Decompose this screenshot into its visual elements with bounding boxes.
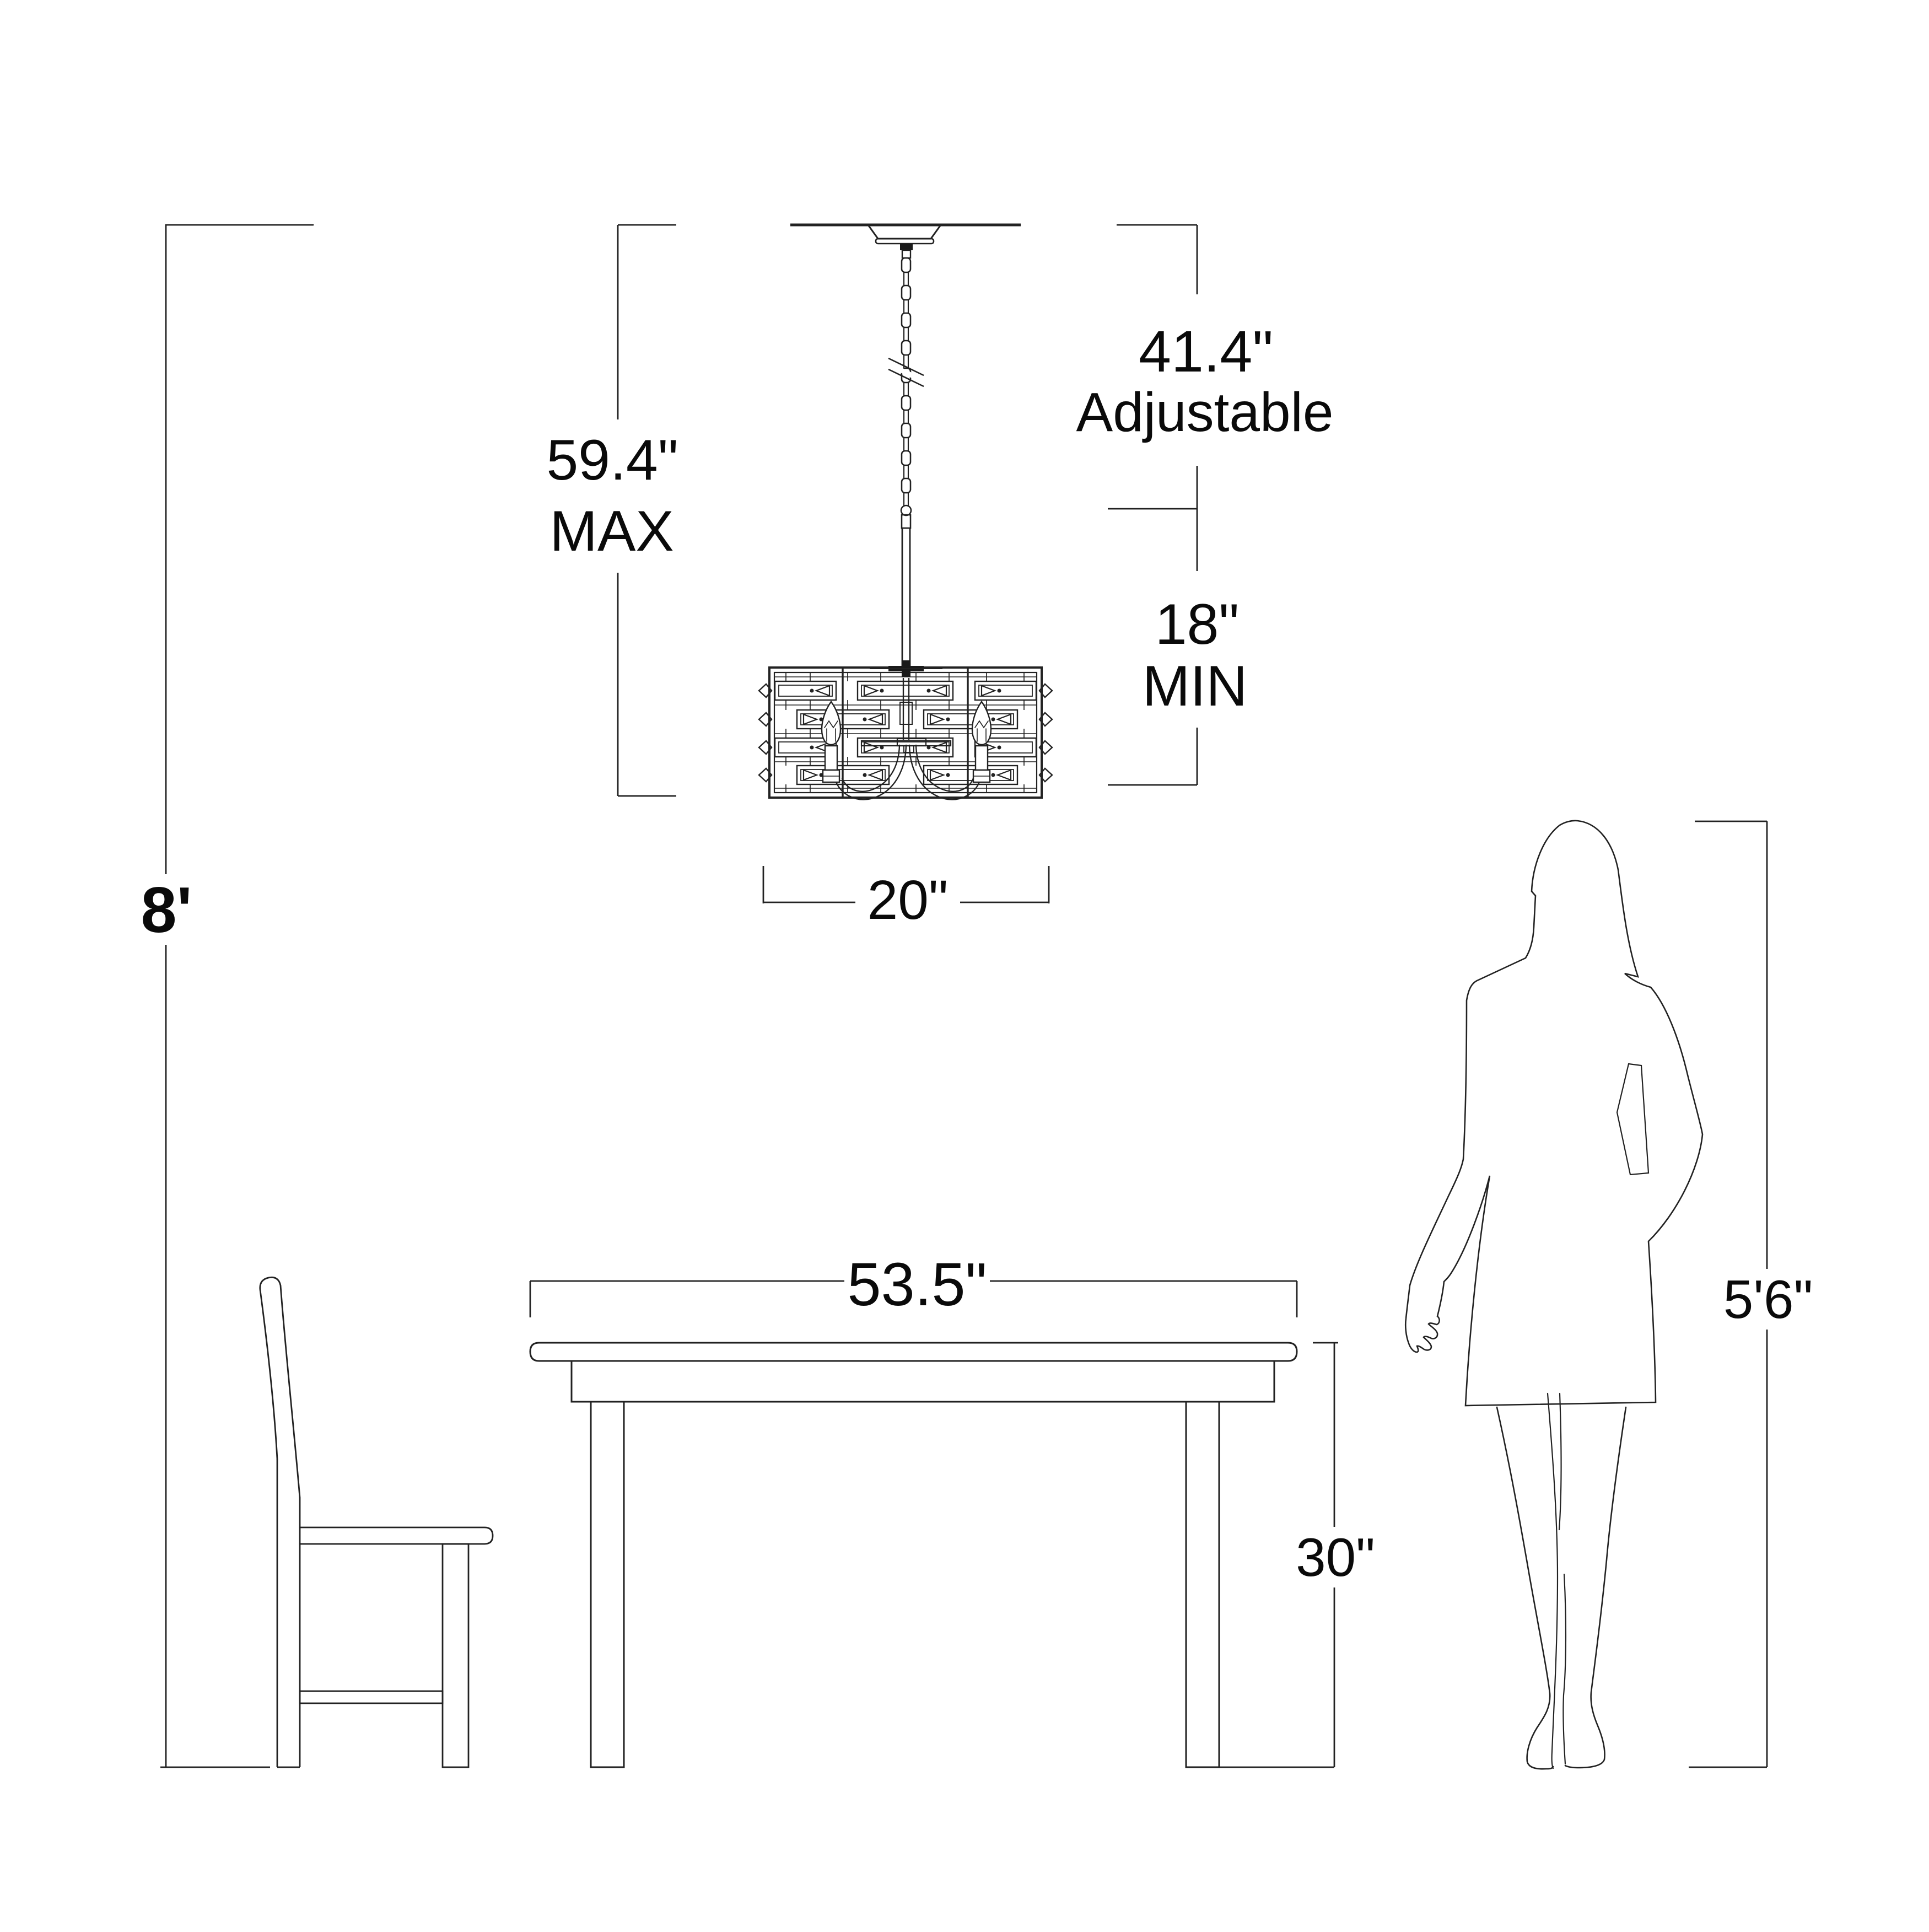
svg-text:30": 30"	[1296, 1527, 1375, 1587]
svg-text:41.4": 41.4"	[1139, 319, 1273, 384]
svg-text:MIN: MIN	[1143, 654, 1248, 718]
svg-text:8': 8'	[141, 874, 192, 946]
svg-text:53.5": 53.5"	[847, 1251, 987, 1319]
svg-text:20": 20"	[867, 869, 949, 931]
svg-text:Adjustable: Adjustable	[1076, 381, 1334, 443]
svg-text:MAX: MAX	[549, 499, 673, 563]
svg-text:18": 18"	[1155, 593, 1240, 656]
svg-text:5'6": 5'6"	[1723, 1269, 1813, 1330]
svg-text:59.4": 59.4"	[546, 428, 678, 492]
